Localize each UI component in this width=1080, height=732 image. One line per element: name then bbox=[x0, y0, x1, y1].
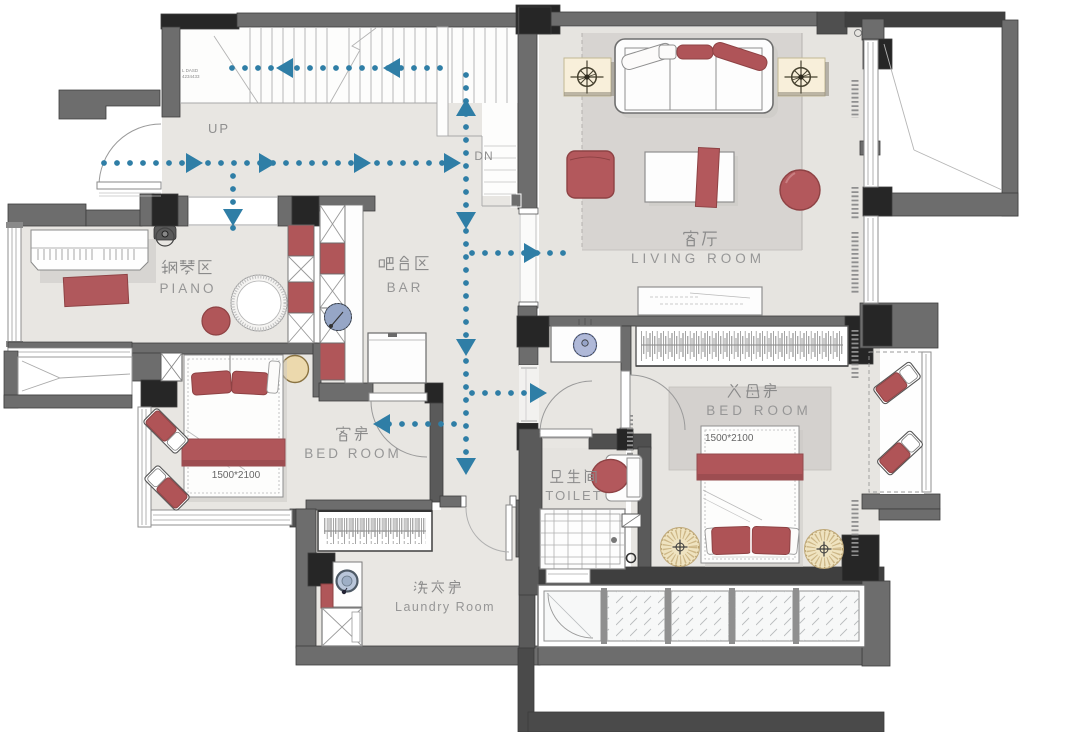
svg-text:UP: UP bbox=[208, 121, 230, 136]
svg-text:BED ROOM: BED ROOM bbox=[304, 446, 402, 461]
svg-text:Laundry Room: Laundry Room bbox=[395, 600, 495, 614]
svg-text:4234433: 4234433 bbox=[182, 74, 200, 79]
svg-text:PIANO: PIANO bbox=[159, 281, 216, 296]
svg-text:BED ROOM: BED ROOM bbox=[706, 403, 812, 418]
svg-text:TOILET: TOILET bbox=[545, 488, 602, 503]
svg-text:LIVING ROOM: LIVING ROOM bbox=[631, 251, 765, 266]
svg-text:L DASD: L DASD bbox=[182, 68, 199, 73]
svg-text:1500*2100: 1500*2100 bbox=[212, 470, 261, 481]
svg-text:1500*2100: 1500*2100 bbox=[705, 433, 754, 444]
svg-text:BAR: BAR bbox=[387, 280, 424, 295]
svg-text:DN: DN bbox=[474, 149, 493, 163]
